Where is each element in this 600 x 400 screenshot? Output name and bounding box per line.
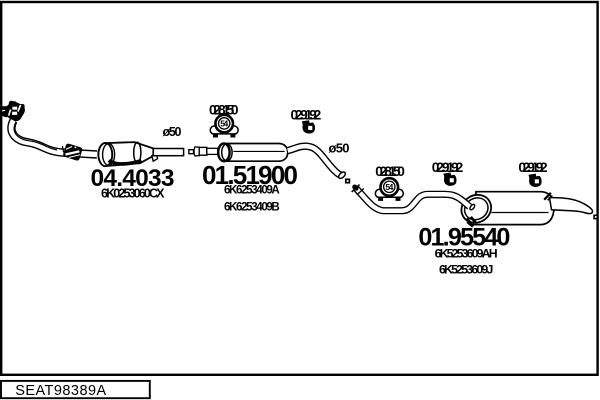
svg-text:ø50: ø50 bbox=[163, 125, 182, 139]
svg-text:02.8150: 02.8150 bbox=[209, 103, 239, 118]
svg-text:SEAT98389A: SEAT98389A bbox=[15, 383, 106, 399]
svg-text:6K6253409B: 6K6253409B bbox=[224, 201, 280, 214]
svg-text:02.9192: 02.9192 bbox=[291, 107, 322, 122]
svg-text:ø50: ø50 bbox=[329, 140, 350, 155]
svg-text:02.8150: 02.8150 bbox=[375, 164, 405, 179]
svg-text:6K5253609AH: 6K5253609AH bbox=[435, 246, 498, 260]
svg-text:02.9192: 02.9192 bbox=[432, 160, 464, 175]
svg-text:02.9192: 02.9192 bbox=[518, 160, 548, 175]
svg-text:6K6253409A: 6K6253409A bbox=[224, 184, 280, 197]
svg-text:6K5253609J: 6K5253609J bbox=[439, 262, 493, 276]
svg-text:54: 54 bbox=[220, 119, 228, 129]
svg-text:6K0253060CX: 6K0253060CX bbox=[101, 186, 165, 200]
svg-text:54: 54 bbox=[385, 182, 393, 192]
